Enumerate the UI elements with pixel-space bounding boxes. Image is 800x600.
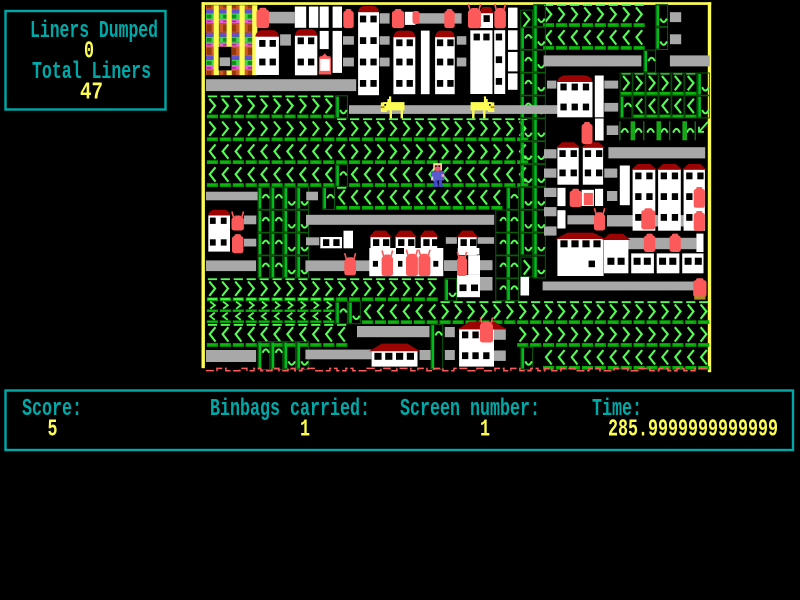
svg-text:1: 1 <box>300 417 310 444</box>
svg-text:Liners Dumped: Liners Dumped <box>30 18 158 45</box>
svg-text:5: 5 <box>48 417 58 444</box>
svg-text:285.9999999999999: 285.9999999999999 <box>608 417 778 444</box>
svg-text:Binbags carried:: Binbags carried: <box>210 396 370 423</box>
svg-text:47: 47 <box>80 80 103 107</box>
svg-text:Screen number:: Screen number: <box>400 396 540 423</box>
svg-text:1: 1 <box>480 417 490 444</box>
